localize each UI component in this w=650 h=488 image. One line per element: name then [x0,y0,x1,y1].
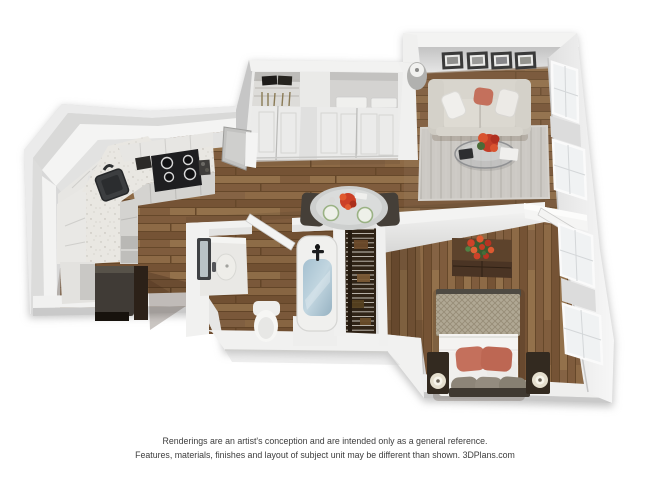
svg-text:Features, materials, finishes: Features, materials, finishes and layout… [135,450,515,460]
svg-text:Renderings are an artist's con: Renderings are an artist's conception an… [163,436,488,446]
